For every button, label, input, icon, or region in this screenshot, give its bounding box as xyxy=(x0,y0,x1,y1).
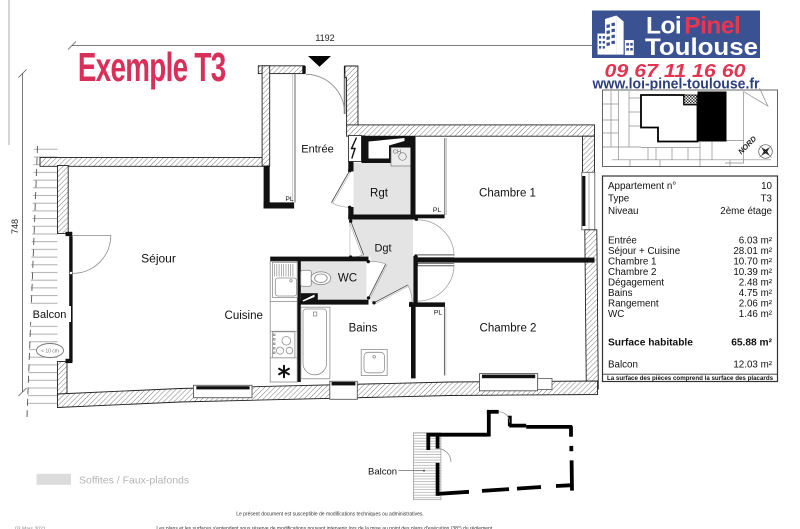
svg-text:Le présent document est suscep: Le présent document est susceptible de m… xyxy=(236,512,424,518)
svg-text:CH: CH xyxy=(393,150,401,156)
svg-text:PL: PL xyxy=(433,207,442,214)
svg-text:4.75 m²: 4.75 m² xyxy=(739,288,773,299)
svg-text:Balcon: Balcon xyxy=(608,360,638,371)
svg-text:10.70 m²: 10.70 m² xyxy=(733,257,772,268)
svg-text:2ème étage: 2ème étage xyxy=(720,206,772,217)
svg-text:6.03 m²: 6.03 m² xyxy=(739,236,773,247)
svg-text:10.39 m²: 10.39 m² xyxy=(733,267,772,278)
svg-text:Dégagement: Dégagement xyxy=(608,278,664,289)
svg-text:Chambre 2: Chambre 2 xyxy=(608,267,656,278)
svg-text:WC: WC xyxy=(608,309,624,320)
svg-text:Bains: Bains xyxy=(608,288,633,299)
svg-text:< 10 cm: < 10 cm xyxy=(41,349,59,355)
svg-text:10: 10 xyxy=(761,181,772,192)
svg-text:La surface des pièces comprend: La surface des pièces comprend la surfac… xyxy=(607,375,774,382)
svg-text:Rangement: Rangement xyxy=(608,299,659,310)
svg-text:1.46 m²: 1.46 m² xyxy=(739,309,773,320)
svg-text:12.03 m²: 12.03 m² xyxy=(733,360,772,371)
svg-text:Balcon: Balcon xyxy=(368,467,397,478)
svg-text:Cuisine: Cuisine xyxy=(225,310,263,322)
svg-text:28.01 m²: 28.01 m² xyxy=(733,246,772,257)
svg-text:Dgt: Dgt xyxy=(374,243,391,255)
svg-text:Surface habitable: Surface habitable xyxy=(608,338,693,349)
svg-text:Séjour: Séjour xyxy=(141,252,176,266)
svg-text:Chambre 1: Chambre 1 xyxy=(608,257,656,268)
svg-text:2.06 m²: 2.06 m² xyxy=(739,299,773,310)
svg-text:Appartement n°: Appartement n° xyxy=(608,181,676,192)
svg-text:T3: T3 xyxy=(761,194,773,205)
svg-text:Chambre 1: Chambre 1 xyxy=(479,188,536,200)
svg-text:Type: Type xyxy=(608,194,630,205)
svg-text:2.48 m²: 2.48 m² xyxy=(739,278,773,289)
svg-text:1192: 1192 xyxy=(315,33,334,43)
svg-text:Balcon: Balcon xyxy=(33,309,67,321)
svg-text:Entrée: Entrée xyxy=(608,236,637,247)
svg-text:Niveau: Niveau xyxy=(608,206,639,217)
svg-text:Toulouse: Toulouse xyxy=(645,34,758,61)
svg-text:Rgt: Rgt xyxy=(370,188,389,200)
svg-text:748: 748 xyxy=(10,219,20,234)
svg-text:Chambre 2: Chambre 2 xyxy=(480,323,537,335)
svg-text:Bains: Bains xyxy=(349,323,378,335)
svg-text:Séjour + Cuisine: Séjour + Cuisine xyxy=(608,246,681,257)
svg-text:65.88 m²: 65.88 m² xyxy=(731,338,772,349)
svg-text:PL: PL xyxy=(285,196,294,203)
svg-text:Entrée: Entrée xyxy=(301,144,333,156)
svg-text:Exemple T3: Exemple T3 xyxy=(78,44,226,90)
svg-text:PL: PL xyxy=(434,310,443,317)
svg-text:WC: WC xyxy=(338,273,357,285)
svg-text:Soffites / Faux-plafonds: Soffites / Faux-plafonds xyxy=(79,475,189,487)
